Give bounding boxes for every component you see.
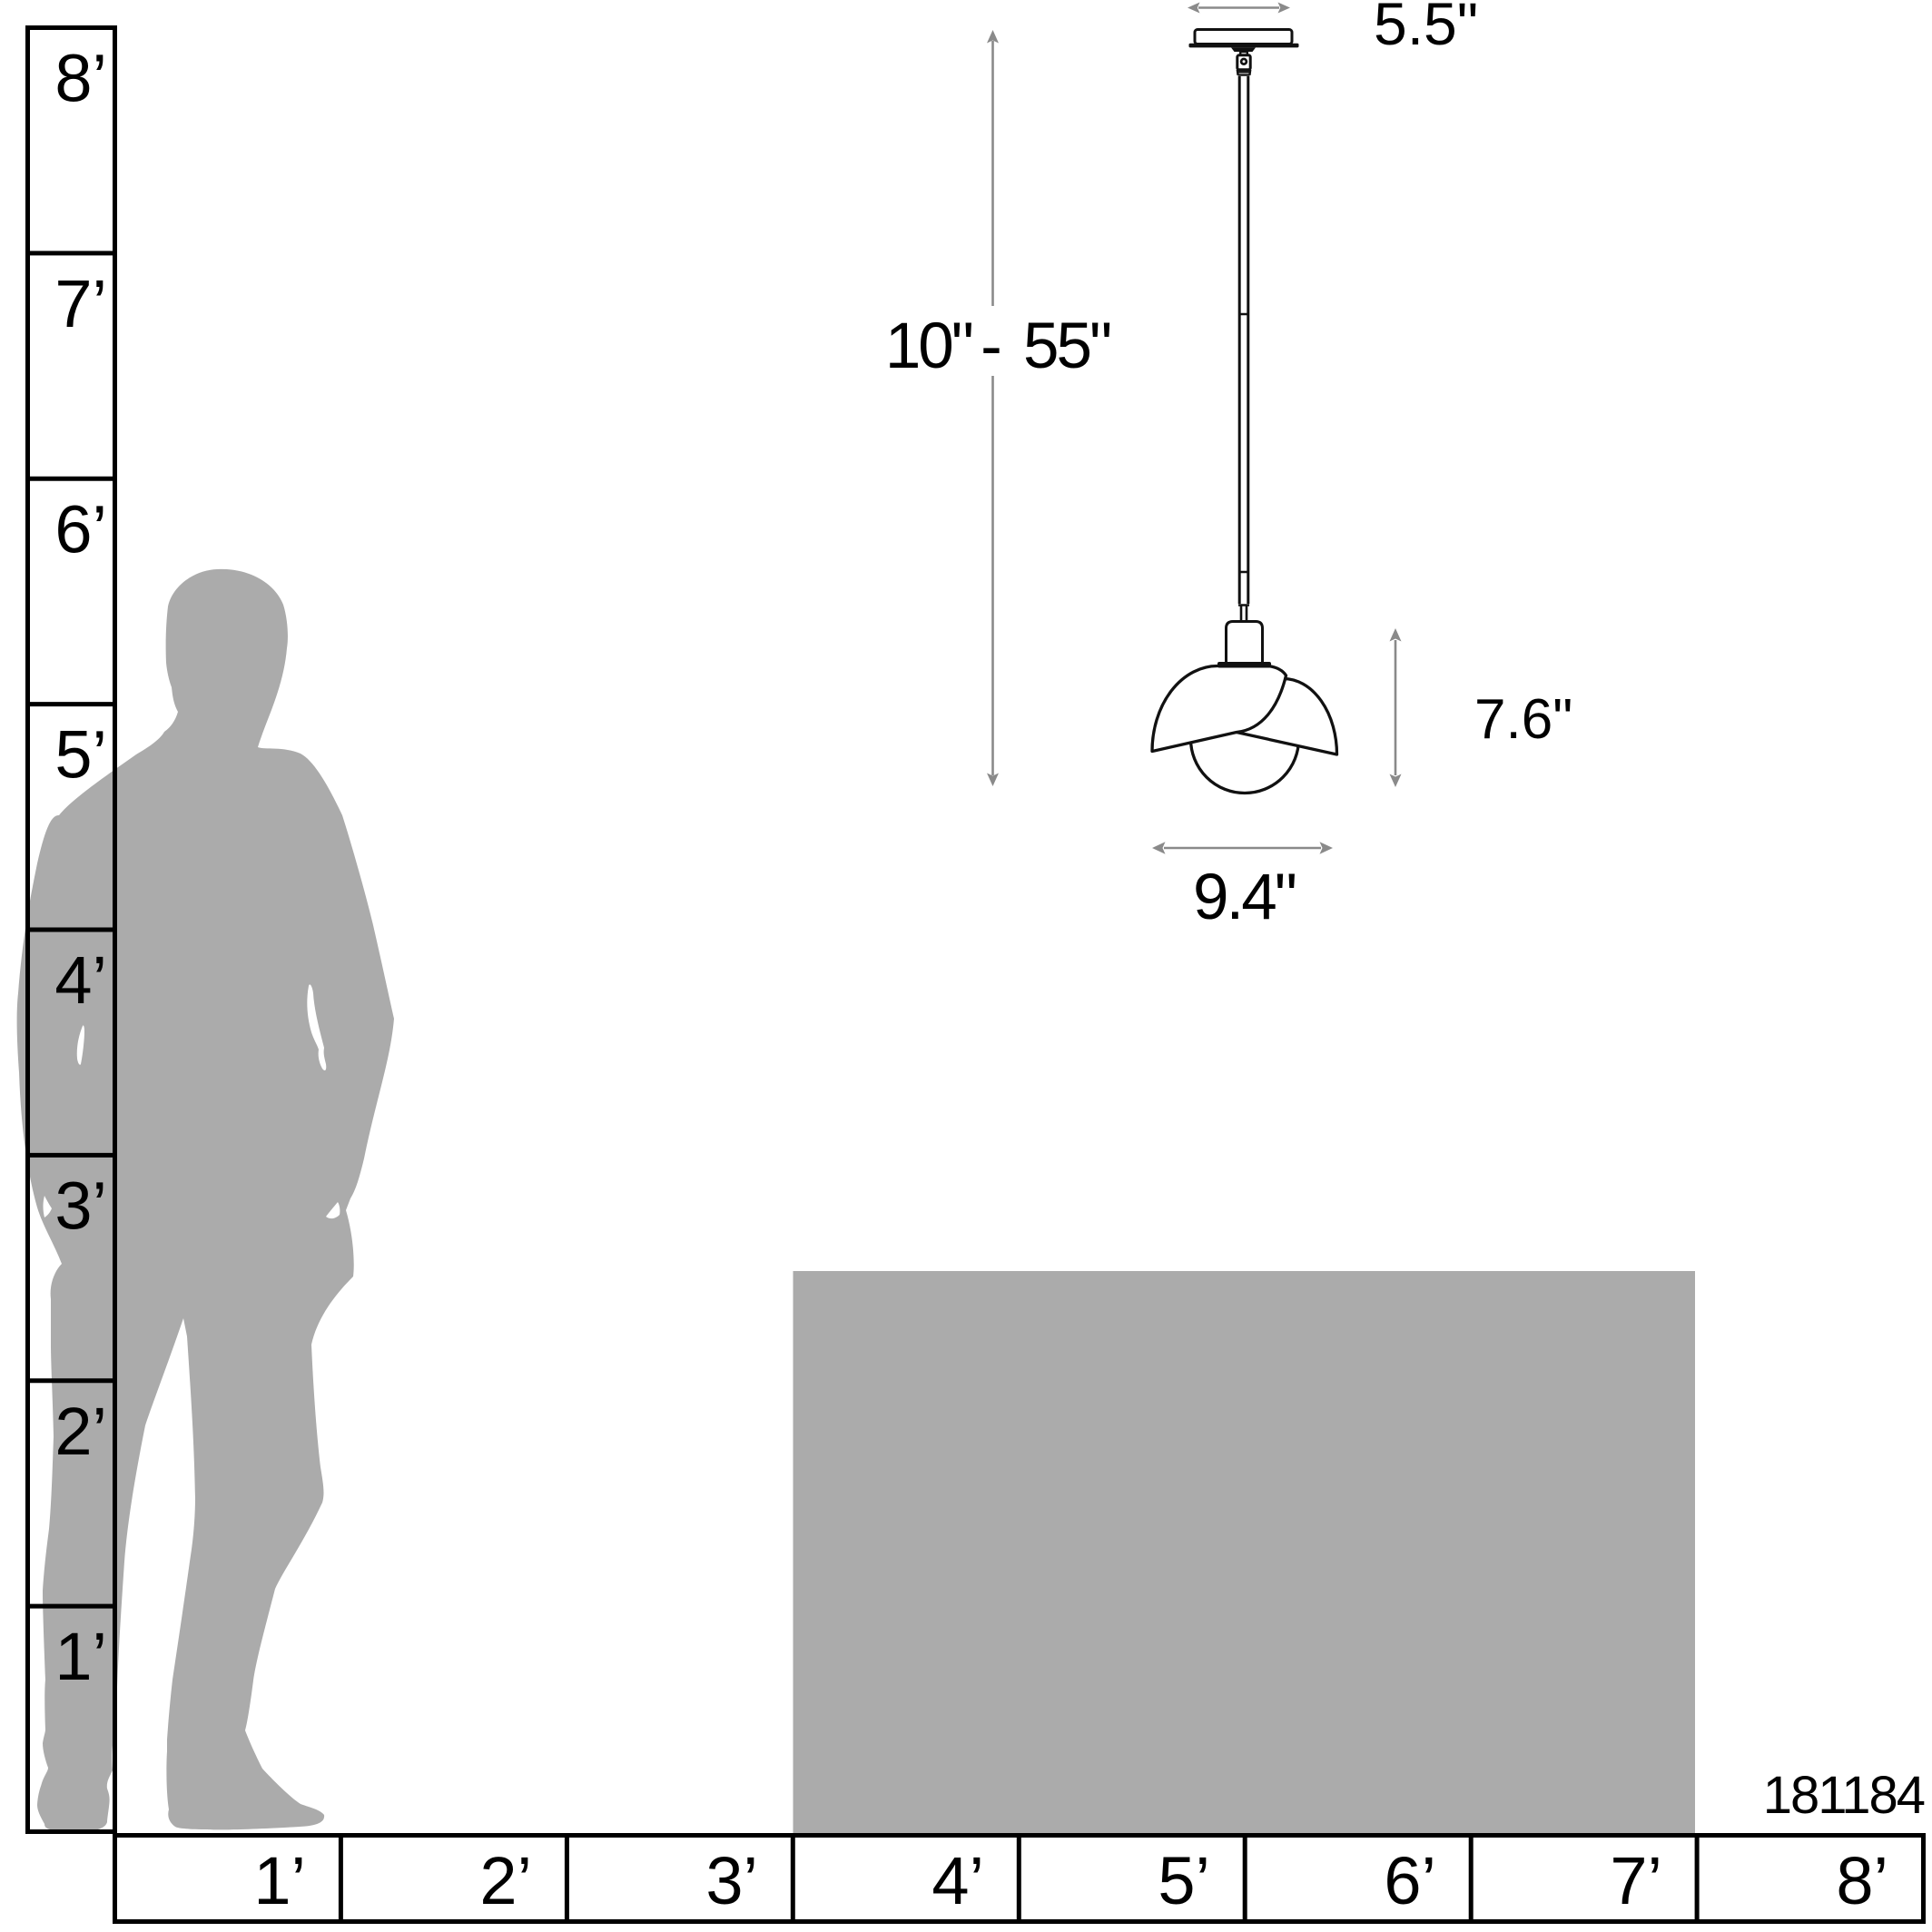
svg-text:7.6": 7.6": [1474, 688, 1572, 751]
svg-text:6’: 6’: [54, 492, 107, 567]
svg-text:55": 55": [1023, 310, 1110, 382]
svg-text:-: -: [981, 310, 1002, 382]
svg-text:7’: 7’: [1610, 1843, 1662, 1918]
svg-text:1’: 1’: [253, 1843, 306, 1918]
svg-text:2’: 2’: [54, 1394, 107, 1469]
svg-text:3’: 3’: [54, 1168, 107, 1244]
svg-text:7’: 7’: [54, 266, 107, 341]
svg-text:6’: 6’: [1384, 1843, 1436, 1918]
svg-text:181184: 181184: [1763, 1766, 1925, 1825]
svg-text:8’: 8’: [1836, 1843, 1888, 1918]
svg-text:8’: 8’: [54, 41, 107, 116]
svg-text:5’: 5’: [54, 717, 107, 793]
svg-text:2’: 2’: [479, 1843, 532, 1918]
svg-text:10": 10": [885, 310, 972, 382]
svg-text:3’: 3’: [705, 1843, 758, 1918]
svg-text:9.4": 9.4": [1193, 862, 1296, 933]
svg-text:5’: 5’: [1158, 1843, 1210, 1918]
svg-text:1’: 1’: [54, 1619, 107, 1694]
svg-text:5.5": 5.5": [1374, 0, 1478, 57]
svg-text:4’: 4’: [54, 942, 107, 1018]
svg-text:4’: 4’: [931, 1843, 984, 1918]
